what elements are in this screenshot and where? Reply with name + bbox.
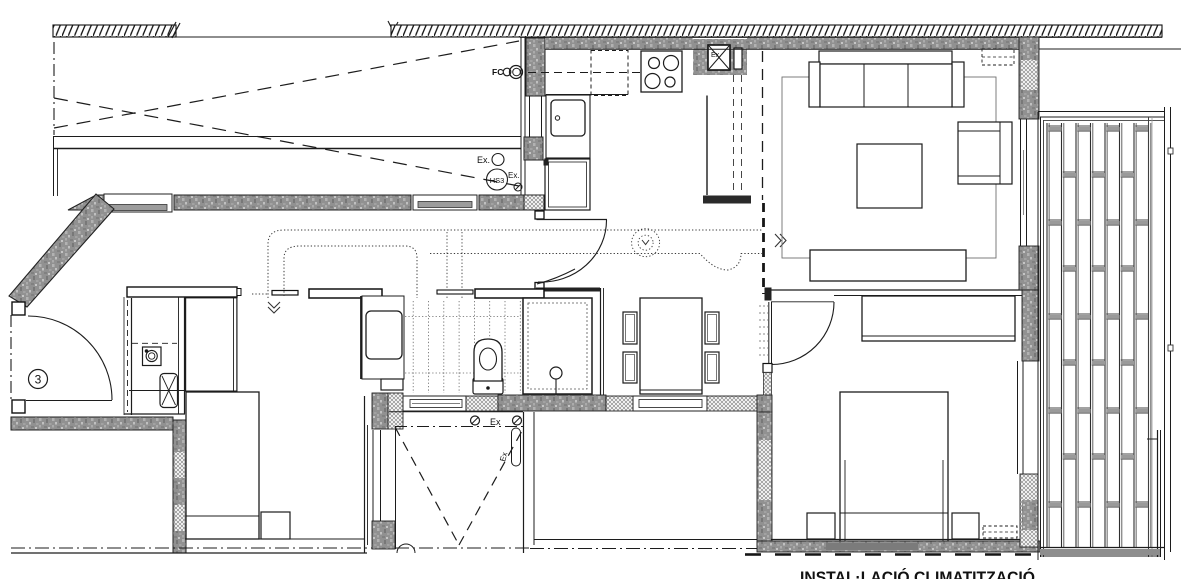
svg-text:Ex.: Ex. [711, 52, 721, 59]
svg-text:INSTAL·LACIÓ CLIMATITZACIÓ: INSTAL·LACIÓ CLIMATITZACIÓ [800, 568, 1035, 579]
svg-text:Ex.: Ex. [477, 155, 490, 165]
svg-text:Ex: Ex [490, 417, 501, 427]
svg-text:3: 3 [35, 373, 42, 387]
svg-text:Ex.: Ex. [508, 171, 520, 180]
svg-text:HS3: HS3 [490, 176, 505, 185]
svg-text:FC: FC [492, 67, 503, 77]
